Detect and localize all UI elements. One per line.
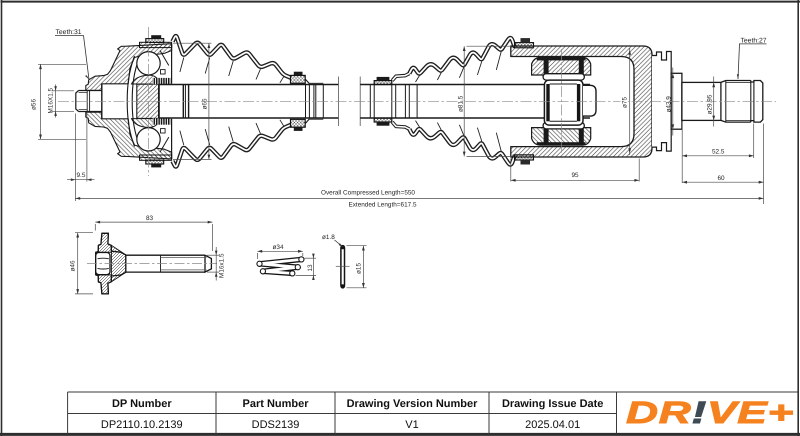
svg-text:83: 83 [146, 215, 154, 222]
svg-text:60: 60 [718, 175, 726, 182]
svg-text:Teeth:31: Teeth:31 [56, 29, 82, 36]
svg-text:Part Number: Part Number [242, 398, 309, 410]
svg-text:DDS2139: DDS2139 [252, 419, 300, 431]
svg-text:DP2110.10.2139: DP2110.10.2139 [101, 419, 183, 431]
svg-text:ø56: ø56 [31, 99, 38, 110]
svg-text:ø66: ø66 [202, 98, 209, 109]
svg-text:DR!VE+: DR!VE+ [626, 395, 794, 430]
svg-text:9.5: 9.5 [77, 172, 86, 179]
svg-text:ø15: ø15 [356, 263, 363, 274]
svg-text:ø75: ø75 [622, 97, 629, 108]
svg-text:Teeth:27: Teeth:27 [741, 38, 767, 45]
svg-text:ø29.95: ø29.95 [707, 94, 714, 114]
svg-text:52.5: 52.5 [712, 149, 725, 156]
svg-text:13: 13 [307, 264, 314, 272]
svg-text:DP Number: DP Number [112, 398, 172, 410]
svg-text:ø46: ø46 [70, 260, 77, 271]
svg-text:Overall Compressed Length=55: Overall Compressed Length=550 [321, 190, 415, 197]
svg-text:ø81.5: ø81.5 [458, 95, 465, 112]
svg-text:Drawing Issue Date: Drawing Issue Date [502, 398, 603, 410]
svg-text:2025.04.01: 2025.04.01 [525, 419, 580, 431]
svg-text:ø1.8: ø1.8 [322, 234, 335, 241]
svg-text:Extended Length=617.5: Extended Length=617.5 [348, 201, 416, 208]
svg-text:Drawing Version Number: Drawing Version Number [347, 398, 479, 410]
svg-text:95: 95 [572, 172, 580, 179]
svg-text:V1: V1 [405, 419, 418, 431]
svg-text:M16x1.5: M16x1.5 [219, 253, 226, 278]
svg-text:ø43.9: ø43.9 [666, 96, 673, 113]
svg-text:ø34: ø34 [273, 244, 284, 251]
svg-text:M16X1.5: M16X1.5 [48, 87, 55, 113]
